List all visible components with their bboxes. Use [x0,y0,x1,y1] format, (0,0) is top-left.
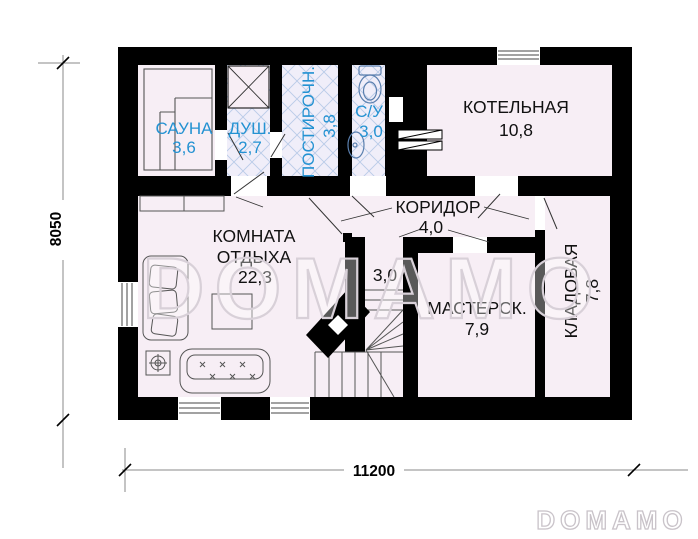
label-boiler: КОТЕЛЬНАЯ [463,97,569,117]
label-shower-area: 2,7 [238,138,262,157]
shower-door-opening [231,176,267,196]
label-wc: С/У [355,102,383,121]
label-sauna: САУНА [156,119,214,138]
shower-tray [228,66,269,108]
laundry-door-opening [270,132,282,158]
window-left [118,282,138,327]
window-top-boiler [497,47,540,65]
label-corridor: КОРИДОР [396,197,481,217]
label-boiler-area: 10,8 [499,120,533,140]
dimension-height: 8050 [48,212,65,246]
storage-door-opening [535,196,545,230]
watermark-center: DOMAMO [142,241,603,337]
label-laundry: ПОСТИРОЧН. [299,66,318,178]
label-corridor-area: 4,0 [419,217,444,237]
wc-door-opening [350,176,386,196]
sauna-door-opening [215,130,227,160]
boiler-door-opening [475,176,518,196]
label-sauna-area: 3,6 [172,138,196,157]
dimension-width: 11200 [353,463,395,480]
label-shower: ДУШ. [229,119,272,138]
window-bottom-2 [270,397,310,420]
label-wc-area: 3,0 [359,122,383,141]
watermark-corner: DOMAMO [536,505,687,535]
label-laundry-area: 3,8 [320,114,339,138]
floor-plan-svg: САУНА 3,6 ДУШ. 2,7 ПОСТИРОЧН. 3,8 С/У 3,… [0,0,698,539]
floor-plan-page: САУНА 3,6 ДУШ. 2,7 ПОСТИРОЧН. 3,8 С/У 3,… [0,0,698,539]
window-bottom-1 [178,397,221,420]
